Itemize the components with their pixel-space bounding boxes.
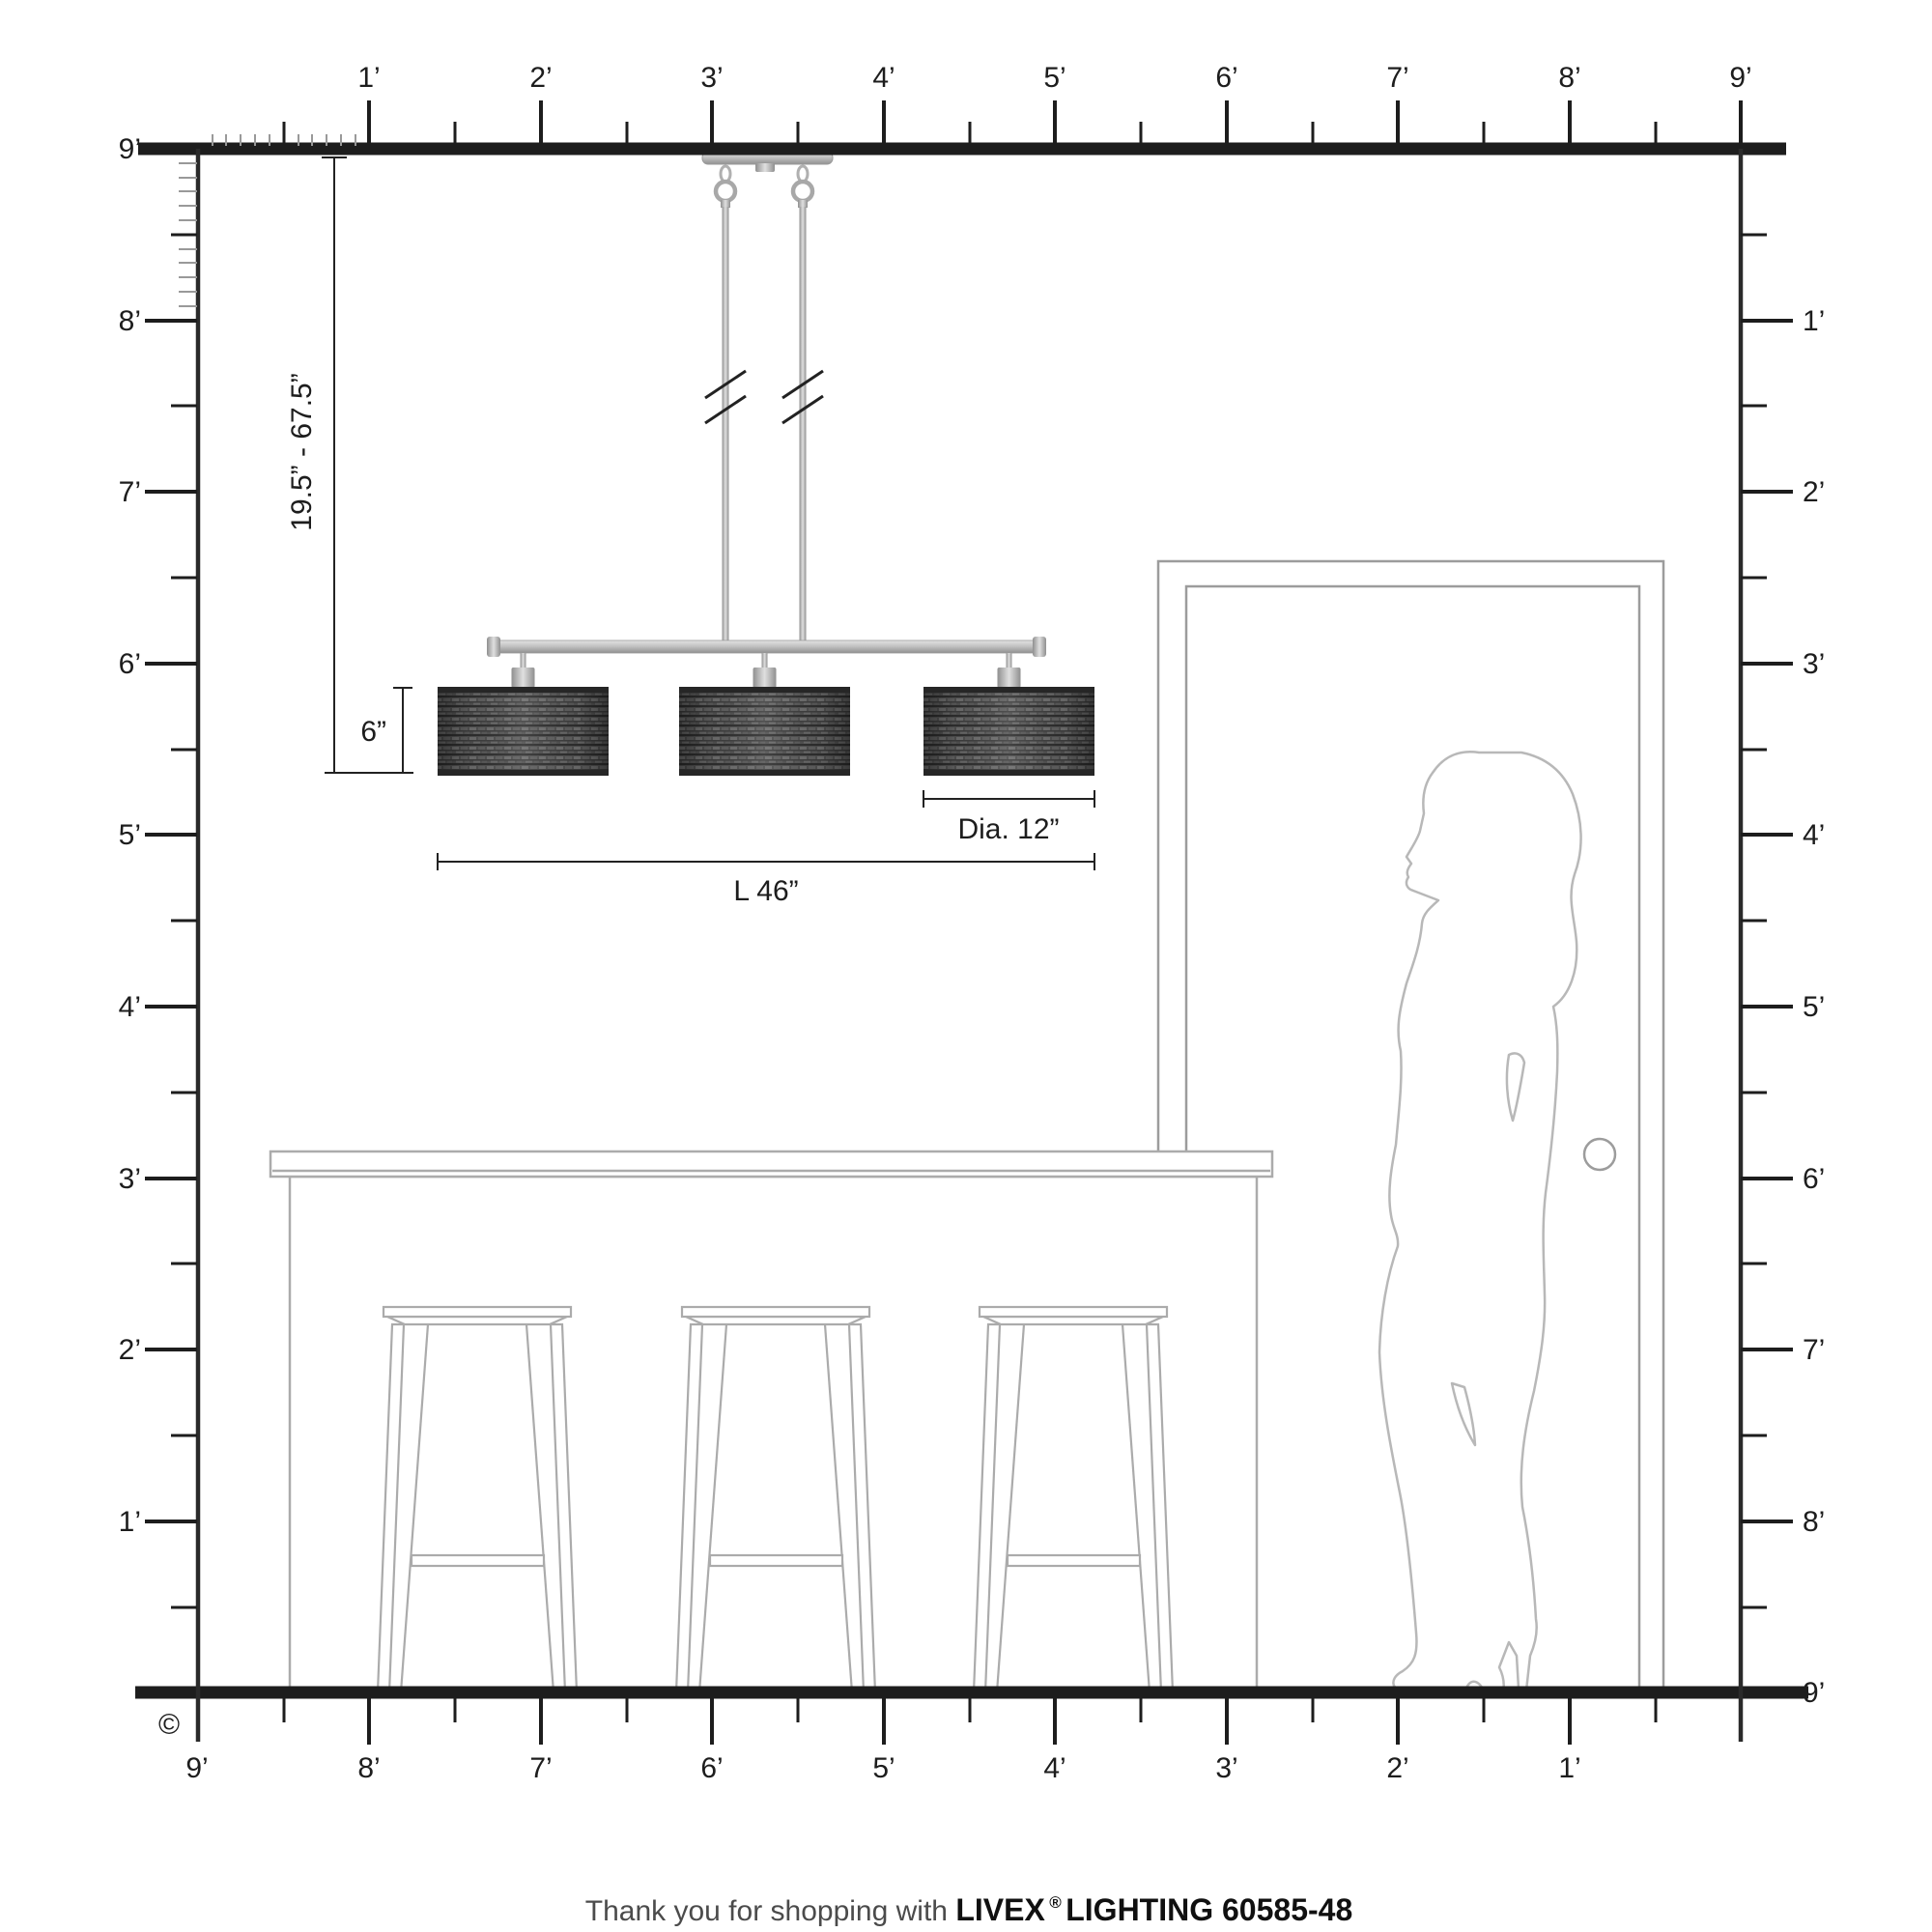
top-ruler-label: 3’ — [700, 62, 723, 94]
top-ruler-label: 5’ — [1043, 62, 1065, 94]
bottom-ruler-label: 7’ — [529, 1752, 552, 1784]
top-ruler-label: 9’ — [1729, 62, 1751, 94]
left-ruler-label: 1’ — [119, 1506, 141, 1538]
bottom-ruler-label: 4’ — [1043, 1752, 1065, 1784]
down-rod — [800, 207, 807, 641]
right-ruler-label: 3’ — [1803, 648, 1825, 680]
drum-shade-2 — [679, 687, 850, 776]
bottom-ruler-label: 5’ — [872, 1752, 895, 1784]
fixture-bar — [499, 640, 1034, 653]
right-hanger — [782, 166, 823, 641]
hanger-collar — [798, 200, 808, 208]
right-ruler-label: 5’ — [1803, 991, 1825, 1023]
left-ruler-label: 6’ — [119, 648, 141, 680]
canopy-nub — [755, 163, 775, 172]
registered-trademark-icon: ® — [1049, 1893, 1062, 1912]
right-ruler-label: 8’ — [1803, 1506, 1825, 1538]
bottom-ruler-label: 2’ — [1386, 1752, 1408, 1784]
diagram-canvas: 1’ 2’ 3’ 4’ 5’ 6’ 7’ 8’ 9’ 9’ 8’ 7’ 6’ 5… — [0, 0, 1932, 1932]
hanger-ring — [716, 182, 735, 201]
left-ruler-label: 7’ — [119, 476, 141, 508]
diameter-dimension — [923, 790, 1094, 808]
left-ruler-label: 3’ — [119, 1163, 141, 1195]
shade-stems — [512, 653, 1021, 688]
footer-suffix: LIGHTING 60585-48 — [1065, 1892, 1352, 1927]
top-ruler-label: 8’ — [1558, 62, 1580, 94]
top-ruler-label: 4’ — [872, 62, 895, 94]
right-ruler-labels: 1’ 2’ 3’ 4’ 5’ 6’ 7’ 8’ 9’ — [1803, 305, 1825, 1709]
bar-end-cap-left — [487, 637, 500, 657]
bottom-ruler-label: 6’ — [700, 1752, 723, 1784]
hanger-ring — [793, 182, 812, 201]
top-ruler-label: 7’ — [1386, 62, 1408, 94]
bottom-ruler-half-ticks — [284, 1698, 1656, 1722]
drum-shade-3 — [923, 687, 1094, 776]
top-ruler-labels: 1’ 2’ 3’ 4’ 5’ 6’ 7’ 8’ 9’ — [357, 62, 1751, 94]
down-rod — [723, 207, 729, 641]
footer-text: Thank you for shopping with LIVEX ® LIGH… — [585, 1892, 1352, 1927]
left-ruler-label: 4’ — [119, 991, 141, 1023]
left-ruler-label: 8’ — [119, 305, 141, 337]
hanger-collar — [721, 200, 730, 208]
right-ruler-label: 6’ — [1803, 1163, 1825, 1195]
bottom-ruler-label: 3’ — [1215, 1752, 1237, 1784]
footer-brand: LIVEX — [955, 1892, 1045, 1927]
top-ruler-label: 1’ — [357, 62, 380, 94]
shade-height-label: 6” — [360, 716, 386, 748]
right-ruler-label: 9’ — [1803, 1677, 1825, 1709]
top-ruler-foot-ticks — [369, 100, 1741, 146]
hang-range-label: 19.5” - 67.5” — [286, 373, 318, 530]
diameter-label: Dia. 12” — [957, 813, 1059, 845]
top-ruler-half-ticks — [284, 122, 1656, 146]
right-ruler-label: 4’ — [1803, 819, 1825, 851]
light-fixture — [438, 152, 1094, 776]
right-ruler-label: 7’ — [1803, 1334, 1825, 1366]
left-ruler-labels: 9’ 8’ 7’ 6’ 5’ 4’ 3’ 2’ 1’ — [119, 133, 141, 1538]
bottom-ruler-label: 9’ — [185, 1752, 208, 1784]
copyright-mark: © — [158, 1709, 180, 1741]
bottom-ruler-label: 8’ — [357, 1752, 380, 1784]
left-ruler-label: 5’ — [119, 819, 141, 851]
length-label: L 46” — [733, 875, 798, 907]
top-ruler-label: 6’ — [1215, 62, 1237, 94]
shade-height-dimension — [393, 688, 412, 773]
top-ruler-label: 2’ — [529, 62, 552, 94]
bottom-ruler-labels: 9’ 8’ 7’ 6’ 5’ 4’ 3’ 2’ 1’ — [185, 1752, 1580, 1784]
hang-range-dimension — [322, 156, 413, 773]
chain-link — [798, 166, 808, 182]
left-hanger — [705, 166, 746, 641]
length-dimension — [438, 853, 1094, 870]
drum-shade-1 — [438, 687, 609, 776]
left-ruler-label: 2’ — [119, 1334, 141, 1366]
right-ruler-label: 1’ — [1803, 305, 1825, 337]
right-ruler-label: 2’ — [1803, 476, 1825, 508]
chain-link — [721, 166, 730, 182]
left-ruler-half-ticks — [171, 235, 197, 1607]
counter-body — [290, 1177, 1257, 1692]
footer-prefix: Thank you for shopping with — [585, 1895, 956, 1927]
left-ruler-label: 9’ — [119, 133, 141, 165]
bottom-ruler-label: 1’ — [1558, 1752, 1580, 1784]
counter-top — [270, 1151, 1272, 1177]
right-ruler-half-ticks — [1741, 235, 1767, 1607]
dimension-diagram: 1’ 2’ 3’ 4’ 5’ 6’ 7’ 8’ 9’ 9’ 8’ 7’ 6’ 5… — [0, 0, 1932, 1932]
bar-end-cap-right — [1033, 637, 1046, 657]
door-knob — [1584, 1139, 1615, 1170]
drum-shades — [438, 687, 1094, 776]
